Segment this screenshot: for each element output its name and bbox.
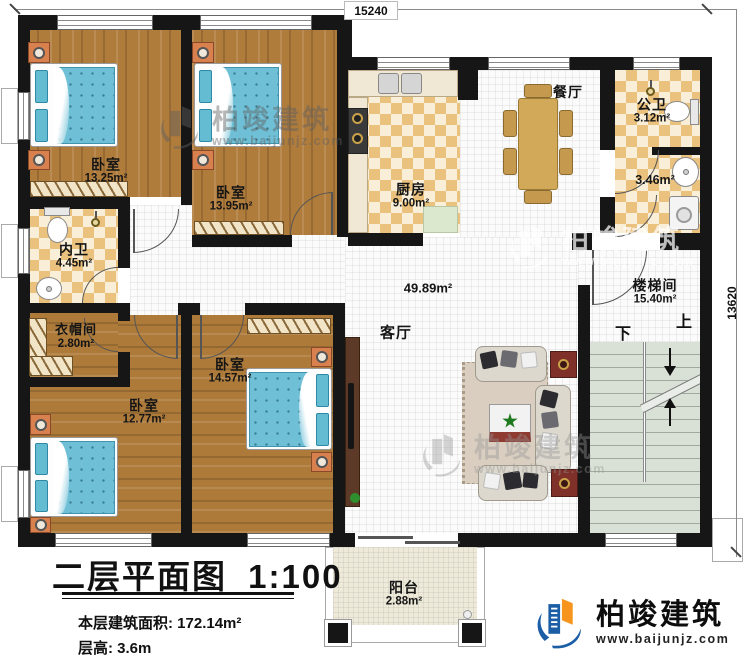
stair-arrow-up-head [664, 398, 676, 408]
room-label-stairwell: 楼梯间 15.40m² [633, 277, 678, 306]
cloakroom-rack [29, 356, 73, 376]
floor-height-value: 3.6m [117, 640, 151, 657]
window-left-bedroom1 [18, 92, 30, 140]
wall-bedbm-living [333, 315, 345, 533]
tv [348, 383, 354, 449]
dining-chair [559, 148, 573, 175]
room-area: 49.89m² [404, 282, 452, 297]
room-area: 2.88m² [386, 595, 422, 608]
door-leaf [200, 315, 202, 359]
wall-cloak-right [118, 352, 130, 387]
room-area: 4.45m² [56, 257, 92, 270]
toilet [47, 217, 68, 243]
plan-scale: 1:100 [248, 558, 342, 595]
company-website: www.baijunjz.com [596, 633, 729, 646]
window-bedroom-top-left [57, 15, 153, 30]
room-name: 衣帽间 [55, 323, 97, 338]
room-name: 卧室 [123, 397, 166, 413]
door-leaf [592, 250, 594, 305]
wall-dining-bath [600, 70, 615, 150]
sofa-cushion [541, 411, 559, 429]
nightstand [192, 42, 214, 63]
wall-kitchen-bottom [348, 233, 423, 246]
wall-bedbl-bedbm [181, 315, 192, 533]
dining-chair [503, 110, 517, 137]
wall-innerbath-right [118, 303, 130, 321]
title-underline [62, 592, 294, 595]
pillow [316, 413, 329, 446]
nightstand [30, 414, 51, 435]
bed-top-mid [194, 63, 282, 147]
plan-title: 二层平面图 1:100 [52, 550, 343, 598]
room-label-public-bath-lower: 3.46m² [635, 173, 675, 187]
room-area: 3.12m² [634, 112, 670, 125]
room-label-balcony: 阳台 2.88m² [386, 579, 422, 608]
dimension-top-value: 15240 [354, 4, 387, 18]
room-label-inner-bath: 内卫 4.45m² [56, 241, 92, 270]
dimension-right-label: 13620 [725, 273, 741, 333]
blanket-fold [299, 372, 313, 447]
sofa-cushion [500, 350, 518, 368]
room-name: 餐厅 [553, 84, 583, 100]
stair-arrow-up-stem [669, 408, 671, 426]
wall-bed1-bed2 [181, 30, 192, 205]
pillow [35, 480, 48, 512]
room-area: 3.46m² [635, 173, 675, 187]
nightstand [311, 452, 332, 472]
wall-corridor-bottom [178, 303, 200, 315]
bed-bottom-left [30, 437, 118, 517]
room-label-cloakroom: 衣帽间 2.80m² [55, 323, 97, 351]
wall-stair-left [578, 285, 590, 547]
side-table-lamp [558, 359, 569, 370]
plan-title-text: 二层平面图 [52, 558, 227, 595]
wall-step-connector [337, 15, 352, 70]
balcony-door-stop [463, 610, 472, 619]
toilet-tank [690, 99, 699, 125]
door-leaf [176, 315, 178, 359]
sofa-cushion [503, 471, 523, 491]
wall-dining-bath [600, 197, 615, 233]
floor-height-label: 层高: [78, 640, 113, 657]
room-name: 阳台 [386, 579, 422, 595]
wall-bath-divider [652, 147, 700, 155]
room-name: 内卫 [56, 241, 92, 257]
ceiling-light [91, 218, 100, 227]
stove-burner [352, 133, 363, 144]
wall-kitchen-dining-stub [458, 57, 478, 100]
wall-right [700, 57, 712, 547]
wall-stair-top [572, 233, 592, 250]
floor-plan: 15240 13620 卧室 13.25m² 卧室 13.95m² 厨房 9.0… [0, 0, 750, 668]
wall-corridor-bottom [245, 303, 345, 315]
window-kitchen [377, 57, 450, 70]
window-sill [1, 224, 18, 278]
pillow [35, 109, 48, 142]
room-name: 客厅 [380, 324, 412, 341]
pillow [316, 374, 329, 407]
toilet-tank [44, 207, 70, 216]
side-table-lamp [559, 478, 570, 489]
title-underline [62, 598, 294, 599]
title-block: 二层平面图 1:100 本层建筑面积: 172.14m² 层高: 3.6m [52, 550, 343, 658]
pillow [199, 109, 212, 142]
room-label-bedroom-top-left: 卧室 13.25m² [85, 156, 128, 185]
room-area: 15.40m² [633, 293, 678, 306]
company-name: 柏竣建筑 [596, 601, 729, 630]
window-bedroom-bm-bottom [247, 533, 330, 547]
company-logo-icon [534, 594, 588, 652]
dimension-top-label: 15240 [344, 1, 398, 20]
dining-chair [524, 84, 552, 98]
floor-area-label: 本层建筑面积: [78, 615, 173, 632]
kitchen-sink [378, 73, 399, 94]
room-area: 9.00m² [393, 197, 429, 210]
window-stair-bottom [605, 533, 677, 547]
company-logo: 柏竣建筑 www.baijunjz.com [534, 594, 729, 652]
nightstand [192, 150, 214, 170]
window-public-bath [633, 57, 680, 70]
door-leaf [331, 192, 333, 235]
wall-cloak-bottom [28, 377, 118, 387]
bed-top-left [30, 63, 118, 147]
ceiling-light [646, 87, 655, 96]
room-area: 12.77m² [123, 413, 166, 426]
wall-innerbath-right [118, 197, 130, 268]
stair-arrow-down-stem [669, 348, 671, 366]
window-sill [1, 466, 18, 522]
washing-machine [669, 196, 699, 230]
sliding-door-panel [358, 536, 413, 539]
dining-chair [524, 190, 552, 204]
dining-chair [559, 110, 573, 137]
sofa-cushion [520, 351, 538, 369]
room-label-living-area: 49.89m² [404, 282, 452, 297]
room-label-bedroom-bottom-left: 卧室 12.77m² [123, 397, 166, 426]
wall-innerbath-bottom [28, 303, 118, 313]
wardrobe-bedroom-bottom-mid [247, 318, 331, 334]
window-sill [1, 88, 18, 144]
stair-arrow-down-head [664, 366, 676, 376]
stair-up-label: 上 [676, 308, 692, 332]
room-name: 卧室 [85, 156, 128, 172]
room-label-living: 客厅 [380, 324, 412, 341]
room-name: 公卫 [634, 96, 670, 112]
room-name: 卧室 [210, 184, 253, 200]
nightstand [311, 347, 332, 367]
floor-area-value: 172.14m² [177, 615, 241, 632]
balcony-column [459, 620, 485, 646]
sliding-door-panel [405, 541, 460, 544]
window-bedroom-top-mid [200, 15, 312, 30]
bed-bottom-mid [246, 368, 332, 450]
sofa-cushion [480, 351, 499, 370]
room-label-dining: 餐厅 [553, 84, 583, 100]
dimension-right-value: 13620 [725, 286, 739, 319]
sofa-cushion [540, 432, 559, 451]
room-label-bedroom-top-mid: 卧室 13.95m² [210, 184, 253, 213]
window-bedroom-bl-bottom [55, 533, 152, 547]
wall-bed2-bottom [192, 235, 292, 247]
wall-stair-top [660, 233, 712, 250]
kitchen-sink [401, 73, 422, 94]
pillow [35, 443, 48, 475]
floor-area-line: 本层建筑面积: 172.14m² [78, 612, 343, 633]
pillow [199, 70, 212, 103]
window-left-bedroom-bl [18, 470, 30, 518]
room-area: 13.25m² [85, 172, 128, 185]
room-label-public-bath: 公卫 3.12m² [634, 96, 670, 125]
room-name: 楼梯间 [633, 277, 678, 293]
nightstand [28, 42, 50, 63]
room-label-bedroom-bottom-mid: 卧室 14.57m² [209, 356, 252, 385]
sofa-cushion [522, 472, 538, 488]
room-area: 14.57m² [209, 372, 252, 385]
door-leaf [133, 209, 135, 253]
pillow [35, 70, 48, 103]
window-dining [488, 57, 570, 70]
bathroom-sink [36, 277, 62, 300]
window-left-innerbath [18, 228, 30, 274]
room-label-kitchen: 厨房 9.00m² [393, 181, 429, 210]
room-area: 13.95m² [210, 200, 253, 213]
nightstand [28, 150, 50, 170]
stove-burner [352, 113, 363, 124]
plant-small [350, 493, 360, 503]
stair-down-label: 下 [615, 320, 631, 344]
room-area: 2.80m² [55, 338, 97, 351]
dining-chair [503, 148, 517, 175]
wardrobe-bedroom-top-mid [194, 221, 284, 235]
room-name: 卧室 [209, 356, 252, 372]
dining-table [518, 98, 558, 190]
nightstand [30, 517, 51, 533]
room-name: 厨房 [393, 181, 429, 197]
floor-height-line: 层高: 3.6m [78, 637, 343, 658]
sofa-cushion [483, 472, 501, 490]
bathroom-sink [672, 157, 699, 187]
